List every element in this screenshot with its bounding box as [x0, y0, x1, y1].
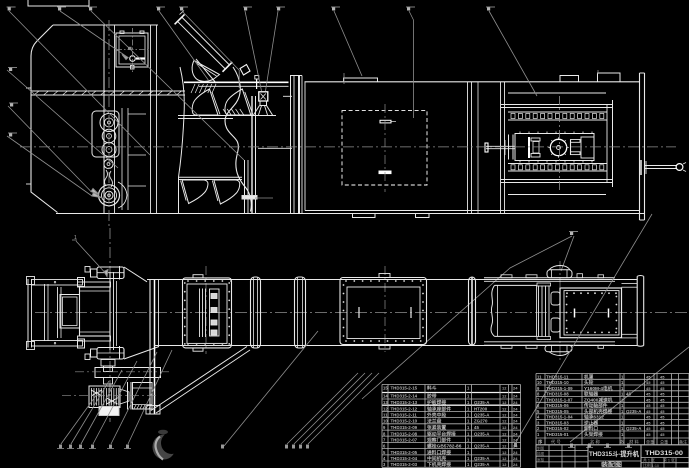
svg-text:THD315-1-07: THD315-1-07 — [546, 397, 573, 402]
svg-text:11: 11 — [383, 413, 388, 418]
svg-text:装配图: 装配图 — [600, 461, 623, 468]
svg-text:45: 45 — [646, 432, 651, 437]
svg-text:12: 12 — [502, 400, 507, 405]
svg-text:12: 12 — [502, 394, 507, 399]
svg-text:12: 12 — [502, 425, 507, 430]
svg-text:45: 45 — [646, 415, 651, 420]
svg-text:45: 45 — [646, 392, 651, 397]
svg-text:THD315-2-14: THD315-2-14 — [391, 394, 418, 399]
svg-text:24: 24 — [513, 456, 518, 461]
svg-text:24: 24 — [513, 413, 518, 418]
svg-text:24: 24 — [513, 400, 518, 405]
svg-text:单重: 单重 — [646, 439, 654, 445]
svg-text:10: 10 — [537, 380, 542, 385]
svg-text:THD315-1-09: THD315-1-09 — [546, 386, 573, 391]
svg-text:45: 45 — [660, 374, 665, 379]
svg-text:12: 12 — [502, 406, 507, 411]
svg-text:THD315-10: THD315-10 — [546, 380, 569, 385]
svg-text:45: 45 — [660, 432, 665, 437]
svg-text:10: 10 — [383, 419, 388, 424]
svg-text:Q235-A: Q235-A — [474, 462, 490, 467]
svg-text:15: 15 — [383, 386, 388, 391]
svg-text:共 1 张: 共 1 张 — [643, 458, 655, 463]
svg-text:45: 45 — [646, 380, 651, 385]
svg-text:料斗: 料斗 — [427, 385, 437, 392]
svg-text:THD315-08: THD315-08 — [546, 392, 569, 397]
svg-text:驱动平台焊接: 驱动平台焊接 — [427, 430, 456, 437]
svg-text:24: 24 — [513, 406, 518, 411]
svg-text:Q235-A: Q235-A — [626, 426, 642, 431]
svg-text:45: 45 — [646, 397, 651, 402]
svg-text:螺栓GB5782-86: 螺栓GB5782-86 — [427, 443, 462, 450]
svg-text:HT200: HT200 — [474, 406, 488, 411]
svg-text:中间机壳: 中间机壳 — [427, 455, 446, 462]
svg-text:12: 12 — [383, 406, 388, 411]
svg-text:12: 12 — [502, 456, 507, 461]
svg-text:法兰盘: 法兰盘 — [427, 418, 442, 425]
svg-text:24: 24 — [513, 431, 518, 436]
svg-text:12: 12 — [502, 437, 507, 442]
svg-text:第 1 张: 第 1 张 — [663, 458, 675, 463]
svg-text:THD315-2-15: THD315-2-15 — [391, 386, 418, 391]
svg-text:胶带: 胶带 — [427, 393, 437, 400]
svg-text:Q235-A: Q235-A — [626, 409, 642, 414]
svg-text:24: 24 — [513, 394, 518, 399]
svg-text:THD315-1-04: THD315-1-04 — [546, 415, 573, 420]
svg-text:头架焊接: 头架焊接 — [584, 431, 603, 438]
svg-text:THD315-2-09: THD315-2-09 — [391, 425, 418, 430]
svg-text:12: 12 — [502, 419, 507, 424]
svg-text:45: 45 — [646, 374, 651, 379]
svg-text:THD315-2-07: THD315-2-07 — [391, 437, 418, 442]
svg-text:THD315-02: THD315-02 — [546, 426, 569, 431]
svg-text:描图: 描图 — [537, 451, 545, 456]
svg-text:45: 45 — [646, 409, 651, 414]
svg-text:45: 45 — [474, 425, 479, 430]
svg-text:24: 24 — [513, 386, 518, 391]
svg-text:12: 12 — [502, 444, 507, 449]
svg-text:45: 45 — [660, 415, 665, 420]
svg-text:外壳中段: 外壳中段 — [427, 412, 446, 419]
svg-text:45: 45 — [660, 380, 665, 385]
svg-text:12: 12 — [502, 450, 507, 455]
svg-text:45: 45 — [646, 426, 651, 431]
svg-text:张紧装置: 张紧装置 — [427, 424, 446, 431]
svg-text:45: 45 — [660, 420, 665, 425]
svg-text:备注: 备注 — [679, 439, 687, 445]
svg-text:Q235-A: Q235-A — [474, 400, 490, 405]
svg-text:THD315-11: THD315-11 — [546, 374, 569, 379]
svg-text:24: 24 — [513, 425, 518, 430]
svg-text:13: 13 — [383, 400, 388, 405]
svg-text:45: 45 — [660, 392, 665, 397]
svg-text:THD315斗-提升机: THD315斗-提升机 — [589, 449, 639, 458]
svg-text:THD315-05: THD315-05 — [546, 409, 569, 414]
svg-text:45: 45 — [660, 426, 665, 431]
svg-text:24: 24 — [513, 437, 518, 442]
svg-text:24: 24 — [513, 462, 518, 467]
svg-text:THD315-00: THD315-00 — [645, 451, 684, 457]
svg-text:总重: 总重 — [660, 439, 668, 445]
svg-text:THD315-2-12: THD315-2-12 — [391, 406, 418, 411]
svg-text:ZG270: ZG270 — [474, 419, 488, 424]
svg-text:护板焊接: 护板焊接 — [427, 399, 446, 406]
svg-text:THD315-06: THD315-06 — [546, 403, 569, 408]
svg-text:45: 45 — [660, 386, 665, 391]
svg-text:THD315-2-05: THD315-2-05 — [391, 450, 418, 455]
svg-text:轴承座部件: 轴承座部件 — [427, 405, 451, 412]
svg-text:THD315-01: THD315-01 — [546, 432, 569, 437]
svg-text:制图: 制图 — [537, 446, 545, 451]
svg-text:THD315-2-10: THD315-2-10 — [391, 419, 418, 424]
svg-text:比例 1:10: 比例 1:10 — [643, 463, 659, 468]
svg-text:24: 24 — [513, 419, 518, 424]
svg-text:THD315-2-04: THD315-2-04 — [391, 456, 418, 461]
svg-text:12: 12 — [502, 386, 507, 391]
svg-text:THD315-2-13: THD315-2-13 — [391, 400, 418, 405]
svg-text:45: 45 — [626, 392, 631, 397]
svg-text:45: 45 — [646, 386, 651, 391]
svg-text:THD315-2-03: THD315-2-03 — [391, 462, 418, 467]
svg-text:进料口焊接: 进料口焊接 — [427, 449, 451, 456]
svg-text:11: 11 — [537, 374, 542, 379]
svg-text:审核: 审核 — [537, 457, 545, 462]
svg-text:45: 45 — [660, 409, 665, 414]
svg-text:45: 45 — [646, 403, 651, 408]
svg-text:Q235-A: Q235-A — [474, 456, 490, 461]
svg-text:12: 12 — [502, 431, 507, 436]
svg-text:45: 45 — [660, 403, 665, 408]
svg-text:14: 14 — [383, 394, 388, 399]
svg-text:THD315-03: THD315-03 — [546, 420, 569, 425]
svg-text:45: 45 — [646, 420, 651, 425]
svg-text:Q235-A: Q235-A — [474, 444, 490, 449]
svg-text:观察门部件: 观察门部件 — [427, 436, 451, 443]
svg-text:24: 24 — [513, 450, 518, 455]
svg-text:24: 24 — [513, 444, 518, 449]
svg-text:下机壳焊接: 下机壳焊接 — [427, 461, 451, 468]
svg-text:45: 45 — [660, 397, 665, 402]
svg-text:Q235-A: Q235-A — [474, 431, 490, 436]
svg-text:Q235-A: Q235-A — [474, 413, 490, 418]
svg-text:THD315-2-08: THD315-2-08 — [391, 431, 418, 436]
svg-text:12: 12 — [502, 462, 507, 467]
svg-text:THD315-2-11: THD315-2-11 — [391, 413, 418, 418]
svg-text:12: 12 — [502, 413, 507, 418]
